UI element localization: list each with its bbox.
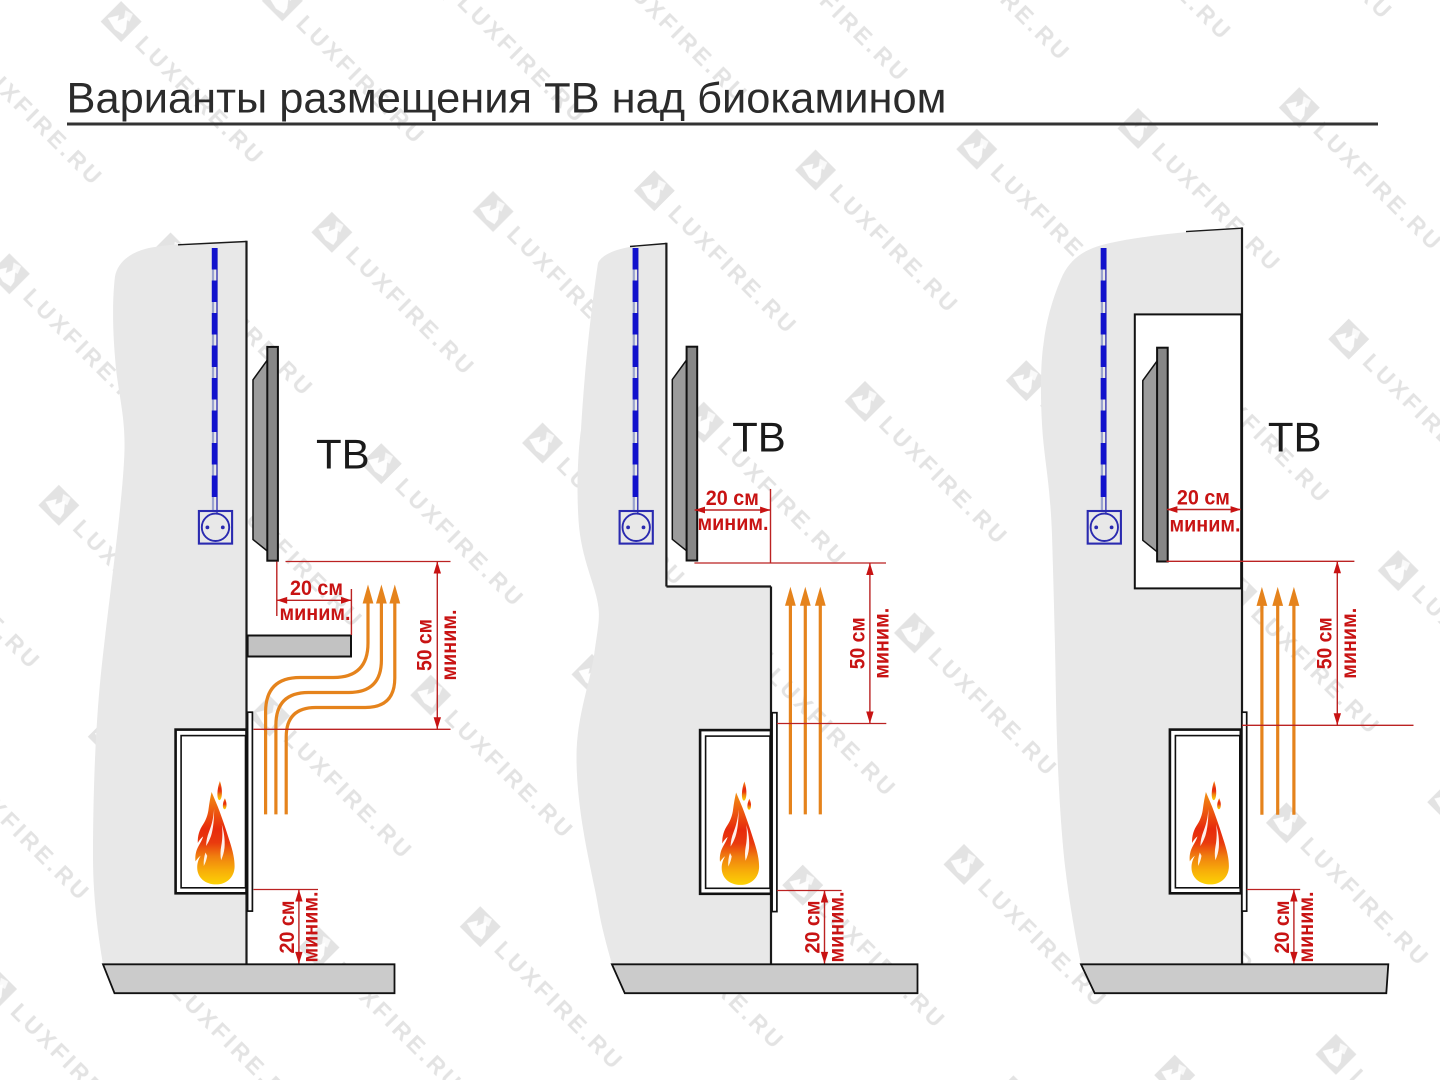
svg-text:20 см: 20 см [706,486,759,510]
svg-text:миним.: миним. [299,892,323,963]
svg-text:миним.: миним. [824,892,848,963]
svg-text:ТВ: ТВ [316,431,370,478]
svg-text:20 см: 20 см [1270,901,1294,954]
svg-text:20 см: 20 см [1177,485,1230,509]
svg-text:20 см: 20 см [801,901,825,954]
svg-text:50 см: 50 см [845,617,869,669]
svg-text:миним.: миним. [698,511,769,535]
svg-text:миним.: миним. [1294,892,1318,963]
svg-text:20 см: 20 см [275,901,299,954]
svg-text:миним.: миним. [869,608,893,679]
svg-text:миним.: миним. [1337,608,1361,679]
svg-text:50 см: 50 см [1313,617,1337,669]
svg-text:миним.: миним. [1170,512,1241,536]
svg-text:20 см: 20 см [290,576,343,600]
svg-text:ТВ: ТВ [1268,414,1322,461]
svg-text:ТВ: ТВ [732,413,786,460]
svg-text:миним.: миним. [280,601,351,625]
svg-text:50 см: 50 см [413,619,437,671]
svg-text:Варианты размещения ТВ над био: Варианты размещения ТВ над биокамином [67,76,947,123]
svg-text:миним.: миним. [437,610,461,681]
